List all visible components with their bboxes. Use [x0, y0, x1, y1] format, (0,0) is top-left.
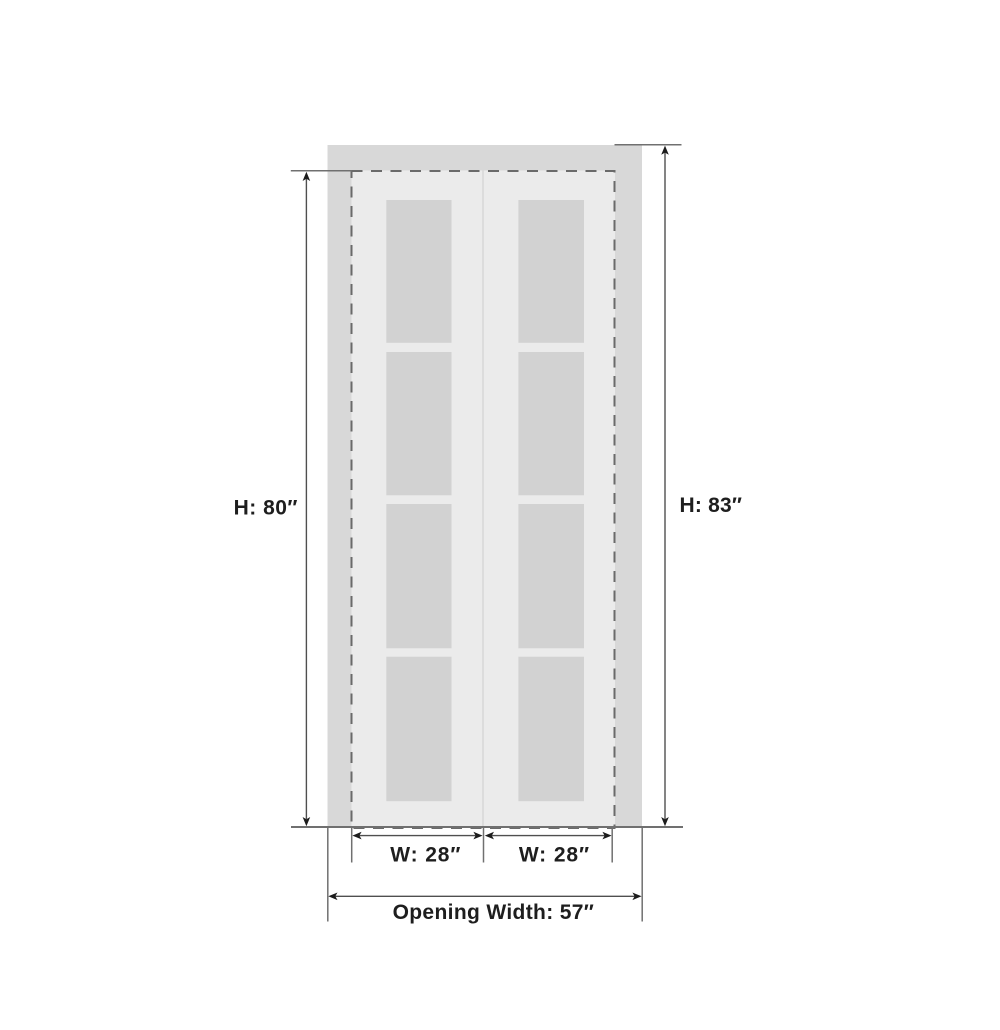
- svg-text:Opening Width: 57″: Opening Width: 57″: [393, 901, 595, 924]
- svg-text:H: 83″: H: 83″: [680, 494, 743, 517]
- svg-text:W: 28″: W: 28″: [519, 844, 590, 867]
- svg-text:H: 80″: H: 80″: [234, 496, 298, 519]
- svg-text:W: 28″: W: 28″: [390, 844, 461, 867]
